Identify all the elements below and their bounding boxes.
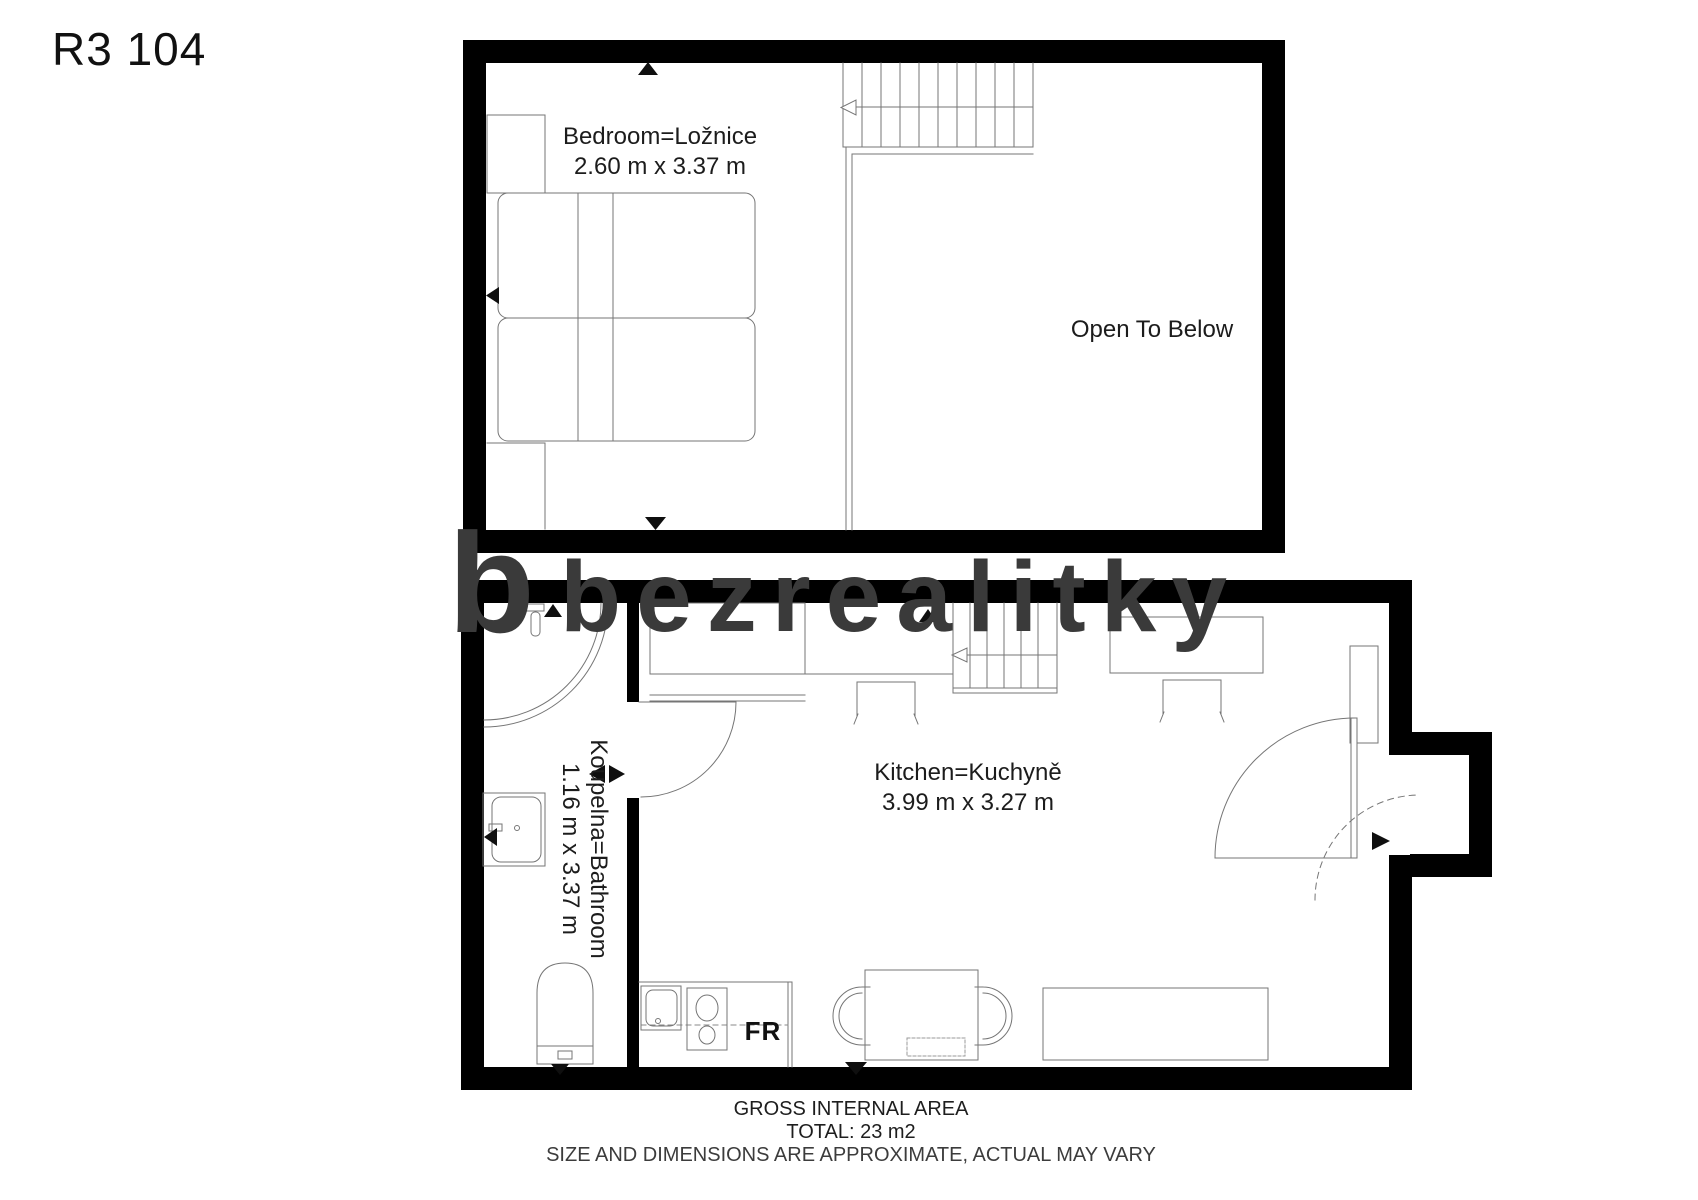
page-title: R3 104 — [52, 22, 206, 76]
entrance-opening — [1387, 755, 1414, 855]
bench — [1043, 988, 1268, 1060]
divider-wall — [627, 603, 639, 1067]
bedroom-label: Bedroom=Ložnice 2.60 m x 3.37 m — [460, 122, 860, 182]
bathroom-name: Koupelna=Bathroom — [584, 709, 612, 989]
bathroom-label: Koupelna=Bathroom 1.16 m x 3.37 m — [556, 709, 612, 989]
door-leaf — [1351, 718, 1357, 858]
bedroom-dimensions: 2.60 m x 3.37 m — [460, 152, 860, 182]
bathroom-dimensions: 1.16 m x 3.37 m — [556, 709, 584, 989]
kitchen-dimensions: 3.99 m x 3.27 m — [768, 788, 1168, 818]
watermark-brand: bezrealitky — [560, 541, 1242, 653]
floor-plan-page: b bezrealitky R3 104 Bedroom=Ložnice 2.6… — [0, 0, 1698, 1200]
bedroom-name: Bedroom=Ložnice — [460, 122, 860, 152]
watermark-logo: b — [448, 504, 535, 663]
footer-area-title: GROSS INTERNAL AREA — [451, 1098, 1251, 1121]
bathroom-door-opening — [627, 702, 639, 798]
lower-floor-plan — [473, 592, 1493, 1079]
dining-table — [865, 970, 978, 1060]
footer-total: TOTAL: 23 m2 — [451, 1121, 1251, 1144]
kitchen-name: Kitchen=Kuchyně — [768, 758, 1168, 788]
entrance-niche-walls — [1410, 732, 1492, 877]
kitchen-label: Kitchen=Kuchyně 3.99 m x 3.27 m — [768, 758, 1168, 818]
footer-disclaimer: SIZE AND DIMENSIONS ARE APPROXIMATE, ACT… — [451, 1144, 1251, 1167]
footer-note: GROSS INTERNAL AREA TOTAL: 23 m2 SIZE AN… — [451, 1098, 1251, 1167]
open-to-below-label: Open To Below — [1052, 315, 1252, 345]
fridge-label: FR — [735, 1016, 791, 1047]
